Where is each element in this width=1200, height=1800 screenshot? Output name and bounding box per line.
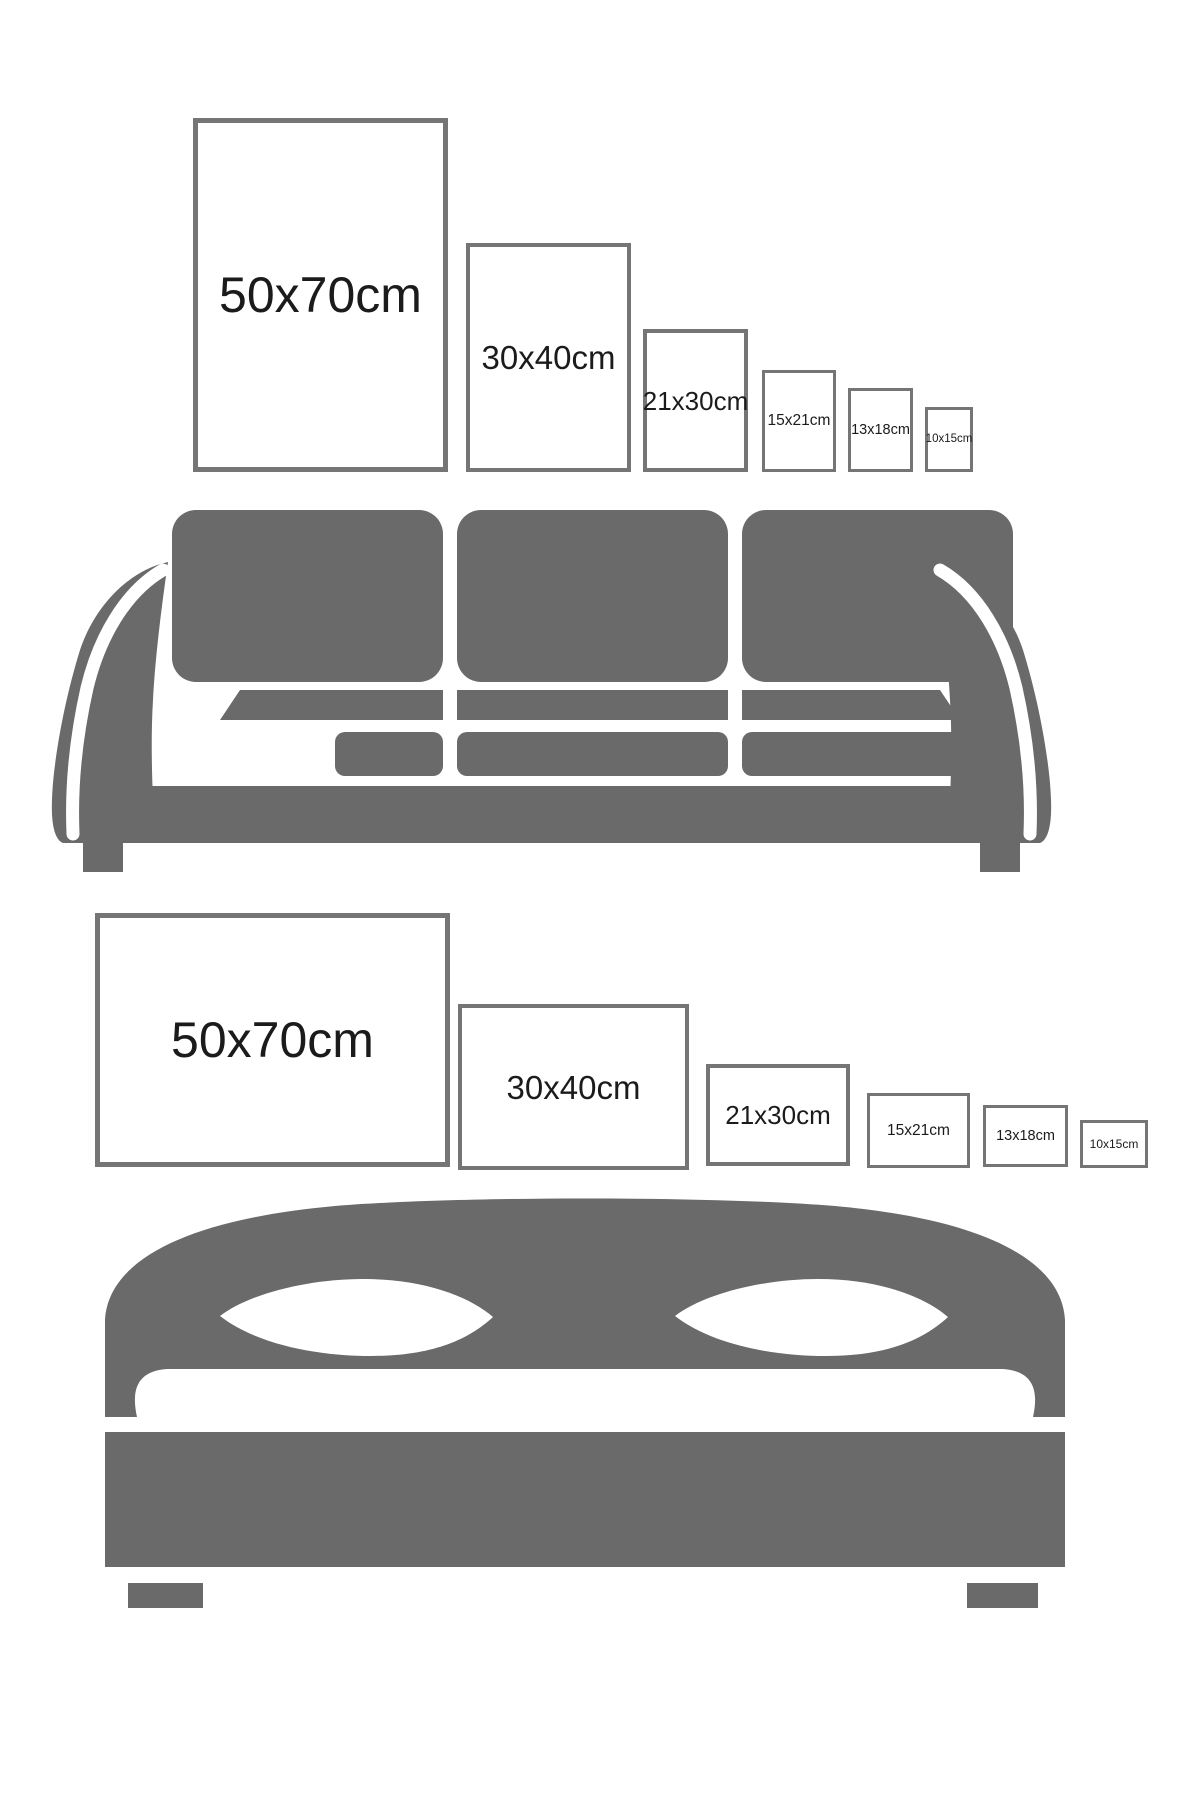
frame-size-label: 13x18cm (851, 423, 910, 438)
poster-size-guide: 50x70cm 30x40cm 21x30cm 15x21cm 13x18cm … (0, 0, 1200, 1800)
bed-icon (95, 1195, 1075, 1610)
frame-size-label: 50x70cm (171, 1015, 374, 1065)
frame-10x15-portrait: 10x15cm (925, 407, 973, 472)
frame-30x40-portrait: 30x40cm (466, 243, 631, 472)
frame-10x15-landscape: 10x15cm (1080, 1120, 1148, 1168)
frame-30x40-landscape: 30x40cm (458, 1004, 689, 1170)
frame-50x70-landscape: 50x70cm (95, 913, 450, 1167)
frame-size-label: 15x21cm (887, 1123, 950, 1139)
frame-size-label: 21x30cm (725, 1102, 831, 1128)
frame-size-label: 21x30cm (643, 388, 749, 414)
frame-15x21-portrait: 15x21cm (762, 370, 836, 472)
frame-size-label: 50x70cm (219, 270, 422, 320)
frame-15x21-landscape: 15x21cm (867, 1093, 970, 1168)
frame-size-label: 15x21cm (768, 413, 831, 429)
frame-size-label: 10x15cm (926, 434, 973, 446)
frame-13x18-landscape: 13x18cm (983, 1105, 1068, 1167)
frame-size-label: 30x40cm (482, 341, 616, 374)
frame-21x30-landscape: 21x30cm (706, 1064, 850, 1166)
frame-size-label: 10x15cm (1090, 1138, 1139, 1150)
frame-size-label: 30x40cm (507, 1071, 641, 1104)
frame-size-label: 13x18cm (996, 1129, 1055, 1144)
frame-21x30-portrait: 21x30cm (643, 329, 748, 472)
sofa-icon (35, 500, 1070, 878)
frame-50x70-portrait: 50x70cm (193, 118, 448, 472)
frame-13x18-portrait: 13x18cm (848, 388, 913, 472)
